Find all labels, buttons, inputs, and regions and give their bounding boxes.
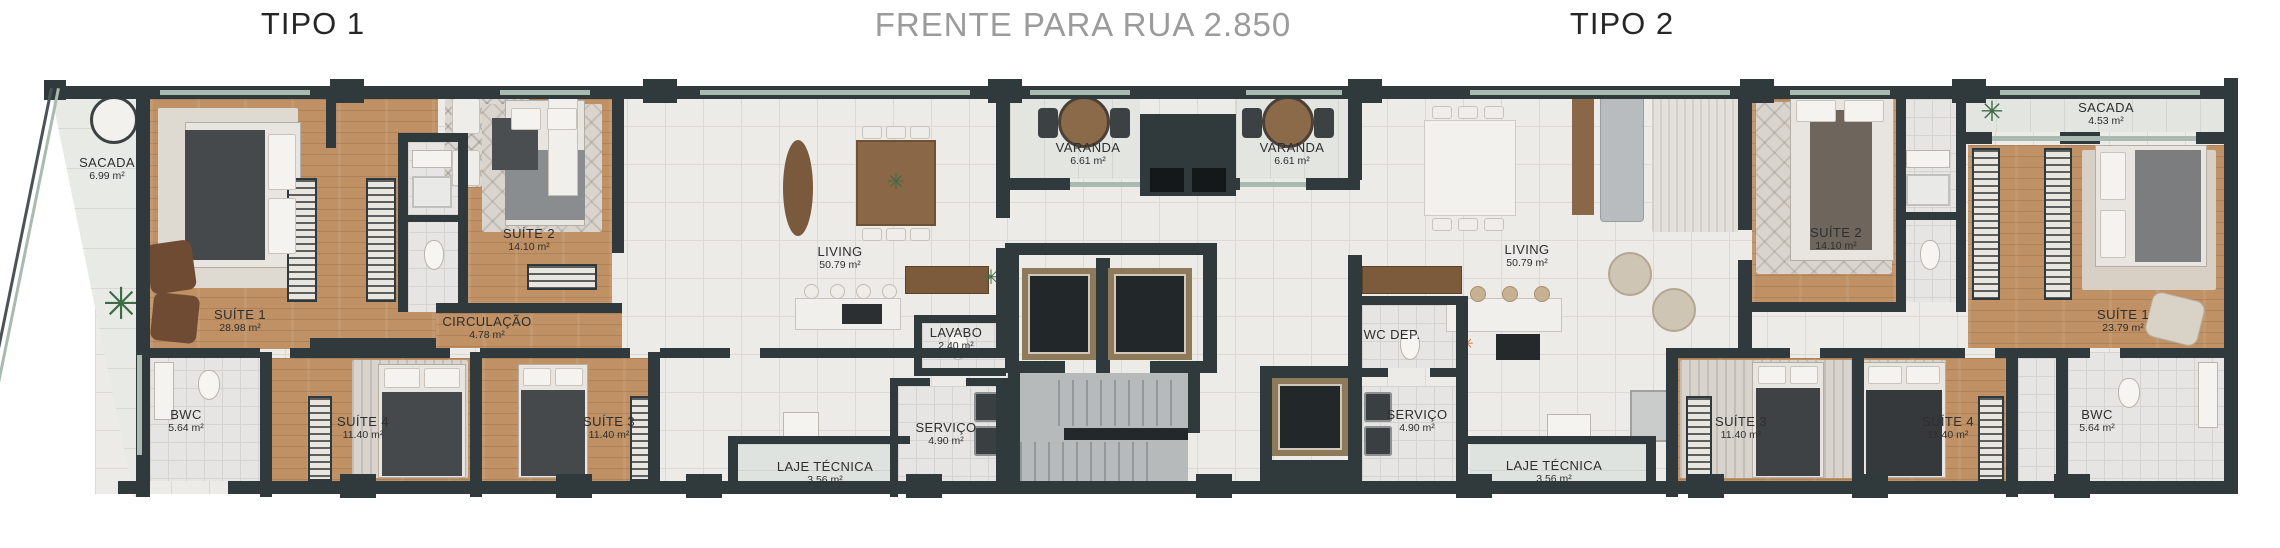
room-label-servico-right: SERVIÇO 4.90 m² [1386, 407, 1447, 434]
elevator-door [1192, 168, 1226, 192]
room-label-suite4-left: SUÍTE 4 11.40 m² [337, 414, 389, 441]
room-area: 4.90 m² [1399, 422, 1435, 434]
wardrobe [1972, 148, 2000, 300]
wall [290, 348, 450, 358]
stool [882, 284, 897, 299]
wall [612, 88, 624, 253]
kitchen-counter-left [905, 266, 989, 294]
room-name: SUÍTE 2 [1810, 225, 1862, 240]
wall [1995, 348, 2090, 358]
varanda-chair [1038, 108, 1058, 138]
wall [1738, 88, 1752, 230]
stool [1534, 286, 1550, 302]
suite3-left-pillow [555, 368, 583, 386]
room-name: SUÍTE 3 [583, 414, 635, 429]
wall-sacada-right [1962, 132, 1992, 144]
wall-core-left [996, 88, 1010, 218]
dining-chair [910, 126, 930, 139]
pillar [643, 79, 677, 103]
wall-sacada-right [2196, 132, 2228, 144]
wall-laje [728, 436, 910, 444]
room-label-suite1-right: SUÍTE 1 23.79 m² [2097, 307, 2149, 334]
room-area: 4.90 m² [928, 435, 964, 447]
room-label-bwc-left: BWC 5.64 m² [168, 407, 204, 434]
room-name: LIVING [817, 244, 862, 259]
room-name: SUÍTE 4 [1922, 414, 1974, 429]
armchair [452, 98, 480, 134]
varanda-chair [1314, 108, 1334, 138]
sofa-right [1600, 90, 1644, 222]
wall-servico-right [1348, 377, 1362, 494]
suite1-left-pillow [268, 134, 296, 190]
room-label-laje-right: LAJE TÉCNICA 3.56 m² [1506, 458, 1602, 485]
window [1790, 90, 1890, 95]
cooktop-right [1496, 334, 1540, 360]
room-label-varanda-left: VARANDA 6.61 m² [1056, 140, 1121, 167]
dresser [527, 264, 597, 290]
room-label-laje-left: LAJE TÉCNICA 3.56 m² [777, 459, 873, 486]
room-area: 50.79 m² [819, 259, 860, 271]
room-area: 2.40 m² [938, 340, 974, 352]
suite1-left-pillow [268, 198, 296, 254]
wall [2006, 358, 2018, 497]
shower [1906, 174, 1950, 206]
room-area: 14.10 m² [508, 241, 549, 253]
room-name: CIRCULAÇÃO [442, 314, 531, 329]
room-name: VARANDA [1056, 140, 1121, 155]
window [500, 90, 590, 95]
room-name: LIVING [1504, 242, 1549, 257]
closet-right-floor [2018, 358, 2056, 481]
wall [1896, 212, 1966, 220]
wall-laje-right [1460, 436, 1656, 444]
pillar [906, 474, 942, 498]
suite2-left-pillow [547, 108, 577, 130]
wall-wc-dep [1348, 296, 1466, 305]
room-label-sacada-left: SACADA 6.99 m² [79, 155, 135, 182]
wall-service-elevator [1260, 366, 1272, 466]
rattan-armchair [1652, 288, 1696, 332]
room-area: 4.78 m² [469, 329, 505, 341]
varanda-chair [1110, 108, 1130, 138]
room-label-circulacao: CIRCULAÇÃO 4.78 m² [442, 314, 531, 341]
stool [1470, 286, 1486, 302]
wall-wc-dep [1348, 368, 1388, 377]
toilet [1920, 240, 1940, 270]
room-name: SUÍTE 4 [337, 414, 389, 429]
plant-icon: ✳ [887, 171, 905, 193]
wardrobe [1686, 396, 1712, 481]
toilet-bwc-right [2118, 378, 2140, 408]
pillar [556, 474, 592, 498]
wall-elevator-box [1150, 361, 1217, 373]
wall-wc-dep [1456, 296, 1468, 377]
armchair-brown [150, 292, 201, 345]
stool [1502, 286, 1518, 302]
varanda-chair [1242, 108, 1262, 138]
wall [260, 352, 272, 497]
cooktop-left [842, 304, 882, 324]
wardrobe [1978, 396, 2004, 481]
dining-chair [862, 126, 882, 139]
room-name: BWC [170, 407, 202, 422]
suite4-right-pillow [1906, 366, 1940, 384]
wall-elevator-box [1005, 243, 1217, 255]
wall [458, 140, 468, 312]
dining-chair [1432, 218, 1452, 231]
floorplan-canvas: TIPO 1 FRENTE PARA RUA 2.850 TIPO 2 [0, 0, 2280, 548]
service-elevator-cab [1272, 378, 1348, 456]
room-name: SERVIÇO [915, 420, 976, 435]
toilet [424, 240, 444, 270]
unit-left-title: TIPO 1 [261, 6, 365, 42]
wall [660, 348, 730, 358]
wall [436, 303, 622, 313]
suite4-left-pillow [384, 368, 420, 388]
room-name: LAVABO [930, 325, 983, 340]
sideboard [783, 140, 813, 236]
suite2-right-pillow [1844, 100, 1884, 122]
wall-stairs [1188, 373, 1200, 433]
bwc-right-counter [2198, 362, 2218, 428]
unit-right-title: TIPO 2 [1570, 6, 1674, 42]
dining-chair [862, 228, 882, 241]
room-label-suite2-left: SUÍTE 2 14.10 m² [503, 226, 555, 253]
wall [480, 348, 630, 358]
suite4-right-pillow [1868, 366, 1902, 384]
room-area: 6.61 m² [1274, 155, 1310, 167]
room-name: SERVIÇO [1386, 407, 1447, 422]
plant-icon: ✳ [103, 283, 140, 327]
stool [830, 284, 845, 299]
living-right-rug [1652, 92, 1738, 232]
room-label-suite2-right: SUÍTE 2 14.10 m² [1810, 225, 1862, 252]
wall [2120, 348, 2228, 358]
elevator-cab [1022, 268, 1096, 360]
sink-counter [412, 150, 452, 168]
room-name: SUÍTE 1 [2097, 307, 2149, 322]
room-area: 11.40 m² [343, 429, 384, 441]
room-area: 5.64 m² [168, 422, 204, 434]
suite3-left-pillow [523, 368, 551, 386]
window [1470, 90, 1730, 95]
suite4-left-pillow [424, 368, 460, 388]
dining-chair [1432, 106, 1452, 119]
room-label-suite3-right: SUÍTE 3 11.40 m² [1715, 414, 1767, 441]
window [700, 90, 970, 95]
room-label-suite3-left: SUÍTE 3 11.40 m² [583, 414, 635, 441]
room-name: LAJE TÉCNICA [1506, 458, 1602, 473]
wall [150, 348, 260, 358]
wall-exterior-top [48, 86, 2238, 99]
room-name: LAJE TÉCNICA [777, 459, 873, 474]
dining-chair [886, 126, 906, 139]
sacada-right-glass [1992, 136, 2196, 141]
room-area: 50.79 m² [1506, 257, 1547, 269]
wall [1738, 260, 1752, 348]
pillar [340, 474, 376, 498]
wall-service-elevator [1260, 366, 1360, 378]
wall-exterior-bottom [228, 481, 2238, 494]
sacada-table-left [90, 96, 138, 144]
suite1-right-bed-blanket [2135, 150, 2201, 262]
pillar [1688, 474, 1724, 498]
room-name: SUÍTE 3 [1715, 414, 1767, 429]
wall [2056, 358, 2068, 497]
room-label-lavabo: LAVABO 2.40 m² [930, 325, 983, 352]
wall [398, 215, 468, 222]
room-name: SUÍTE 1 [214, 307, 266, 322]
elevator-door [1150, 168, 1184, 192]
laje-sink-left [783, 412, 819, 438]
window [2000, 90, 2200, 95]
stool [856, 284, 871, 299]
room-label-wc-dep: WC DEP. [1364, 327, 1421, 342]
room-name: SACADA [2078, 100, 2134, 115]
dining-chair [1458, 218, 1478, 231]
suite2-left-pillow [511, 108, 541, 130]
room-label-varanda-right: VARANDA 6.61 m² [1260, 140, 1325, 167]
dining-chair [1458, 106, 1478, 119]
wall [648, 352, 660, 482]
sink-counter [1906, 150, 1950, 168]
room-label-living-right: LIVING 50.79 m² [1504, 242, 1549, 269]
dining-chair [1484, 218, 1504, 231]
dining-chair [1484, 106, 1504, 119]
wall-laje-right [1646, 436, 1656, 494]
room-area: 3.56 m² [807, 474, 843, 486]
room-name: SUÍTE 2 [503, 226, 555, 241]
room-area: 11.40 m² [1721, 429, 1762, 441]
wall [1820, 348, 1965, 358]
wall-lavabo [914, 315, 1006, 323]
wall-laje [728, 436, 738, 494]
window [1246, 90, 1342, 95]
street-front-title: FRENTE PARA RUA 2.850 [875, 6, 1292, 44]
wardrobe [366, 178, 396, 302]
wall-elevator-box [1203, 243, 1217, 373]
toilet-bwc-left [198, 370, 220, 400]
room-area: 11.40 m² [1928, 429, 1969, 441]
wall-stairs [1008, 373, 1020, 494]
room-area: 5.64 m² [2079, 422, 2115, 434]
wall-lavabo [914, 315, 922, 375]
wall-core-right [1348, 88, 1362, 180]
wall [1752, 302, 1906, 312]
stool [804, 284, 819, 299]
console-right [1572, 95, 1594, 215]
room-name: SACADA [79, 155, 135, 170]
room-label-sacada-right: SACADA 4.53 m² [2078, 100, 2134, 127]
suite3-right-pillow [1758, 366, 1786, 384]
suite1-left-bed-mattress [185, 130, 265, 260]
elevator-cab [1108, 268, 1192, 360]
room-label-suite1-left: SUÍTE 1 28.98 m² [214, 307, 266, 334]
room-area: 6.61 m² [1070, 155, 1106, 167]
wall-elevator-box [1005, 243, 1019, 373]
window [160, 90, 310, 95]
wall-wc-dep [1430, 368, 1466, 377]
armchair-brown [145, 239, 198, 295]
wall-core-right [1348, 255, 1362, 377]
room-label-suite4-right: SUÍTE 4 11.40 m² [1922, 414, 1974, 441]
suite3-left-bed-blanket [521, 390, 585, 476]
dining-chair [910, 228, 930, 241]
room-area: 23.79 m² [2102, 322, 2143, 334]
dining-table-right [1424, 120, 1516, 216]
suite1-right-pillow [2100, 210, 2126, 258]
room-name: BWC [2081, 407, 2113, 422]
wall [1666, 348, 1790, 358]
room-label-servico-left: SERVIÇO 4.90 m² [915, 420, 976, 447]
room-area: 3.56 m² [1536, 473, 1572, 485]
wall [1956, 88, 1966, 312]
wall [470, 352, 482, 497]
kitchen-counter-right [1362, 266, 1462, 294]
wall-corner-stub [118, 481, 148, 494]
suite1-right-pillow [2100, 152, 2126, 200]
pillar [1196, 474, 1232, 498]
dining-chair [886, 228, 906, 241]
wall [1852, 358, 1864, 497]
room-area: 11.40 m² [589, 429, 630, 441]
rattan-armchair [1608, 252, 1652, 296]
wall [1666, 358, 1678, 497]
shower [412, 176, 452, 208]
room-area: 28.98 m² [219, 322, 260, 334]
suite4-left-bed-blanket [382, 392, 462, 476]
room-area: 14.10 m² [1815, 240, 1856, 252]
wall [398, 140, 408, 312]
window [137, 355, 142, 455]
pillar [686, 474, 722, 498]
wardrobe [308, 396, 332, 481]
suite3-right-pillow [1790, 366, 1818, 384]
wall-elevator-box [1005, 361, 1065, 373]
wall [326, 88, 336, 148]
wall-servico [966, 378, 1006, 386]
suite2-right-pillow [1796, 100, 1836, 122]
stair-rail [1064, 428, 1188, 440]
wall-lavabo [914, 368, 1006, 376]
wall [1896, 88, 1906, 312]
room-area: 6.99 m² [89, 170, 125, 182]
room-label-bwc-right: BWC 5.64 m² [2079, 407, 2115, 434]
wall-varanda [1000, 178, 1070, 190]
room-area: 4.53 m² [2088, 115, 2124, 127]
room-name: VARANDA [1260, 140, 1325, 155]
window [1030, 90, 1130, 95]
stair-treads-upper [1058, 380, 1184, 426]
wardrobe [2044, 148, 2072, 300]
room-label-living-left: LIVING 50.79 m² [817, 244, 862, 271]
varanda-glass-door [1070, 182, 1140, 187]
room-name: WC DEP. [1364, 327, 1421, 342]
varanda-glass-door [1240, 182, 1306, 187]
